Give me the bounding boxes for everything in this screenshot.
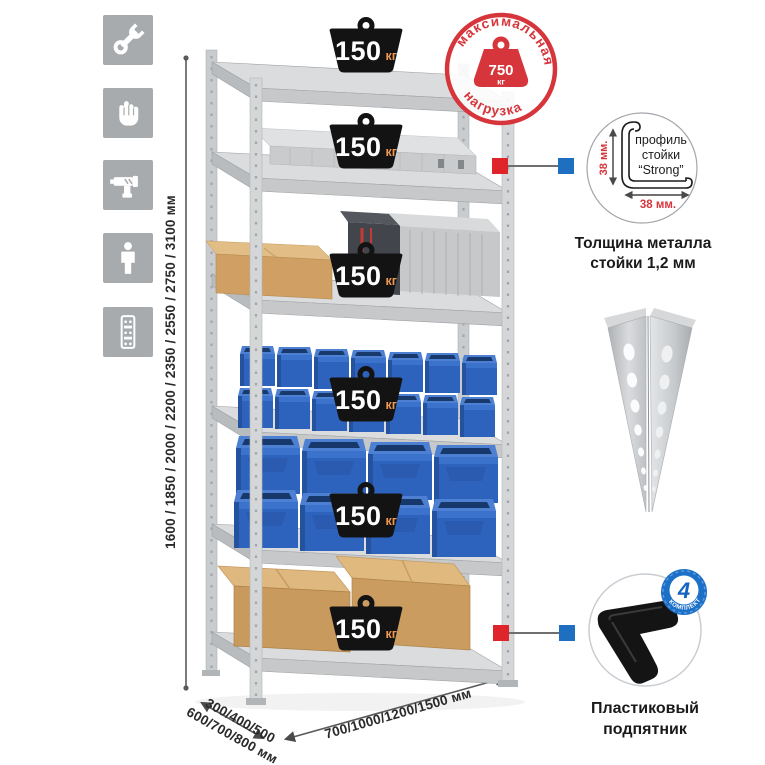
feature-tile-drill — [103, 160, 153, 210]
shelf-load-badge-6: 150кг — [322, 594, 410, 656]
load-unit: кг — [386, 49, 397, 63]
profile-caption-line-2: стойки 1,2 мм — [558, 254, 728, 274]
load-unit: кг — [386, 145, 397, 159]
blue-marker-top — [558, 158, 574, 174]
profile-detail-circle: 38 мм. 38 мм. профиль стойки “Strong” — [587, 113, 697, 223]
max-load-stamp: максимальная нагрузка 750 кг — [440, 8, 562, 130]
load-unit: кг — [386, 514, 397, 528]
corner-post-detail — [604, 308, 696, 512]
blue-marker-bottom — [559, 625, 575, 641]
stamp-load-unit: кг — [497, 77, 505, 87]
profile-label-3: “Strong” — [638, 163, 683, 177]
shelf-load-badge-5: 150кг — [322, 481, 410, 543]
person-icon — [109, 239, 147, 277]
feature-tile-assembly — [103, 15, 153, 65]
feature-tile-person — [103, 233, 153, 283]
connector-line-top — [507, 165, 559, 167]
shelf-load-badge-4: 150кг — [322, 365, 410, 427]
wrench-icon — [109, 21, 147, 59]
shelf-load-badge-1: 150кг — [322, 16, 410, 78]
gloves-icon — [109, 94, 147, 132]
profile-caption: Толщина металла стойки 1,2 мм — [558, 234, 728, 274]
profile-height-dim: 38 мм. — [598, 141, 610, 176]
height-dimension-label: 1600 / 1850 / 2000 / 2200 / 2350 / 2550 … — [163, 52, 179, 692]
feature-tile-rack-post — [103, 307, 153, 357]
badge-count: 4 — [677, 578, 690, 603]
load-value: 150 — [335, 385, 382, 415]
load-value: 150 — [335, 36, 382, 66]
product-infographic: 38 мм. 38 мм. профиль стойки “Strong” 4 … — [0, 0, 765, 765]
load-unit: кг — [386, 398, 397, 412]
profile-label-2: стойки — [642, 148, 680, 162]
load-value: 150 — [335, 614, 382, 644]
foot-caption-line-1: Пластиковый — [560, 698, 730, 719]
feature-tile-gloves — [103, 88, 153, 138]
load-value: 150 — [335, 261, 382, 291]
foot-caption: Пластиковый подпятник — [560, 698, 730, 740]
foot-caption-line-2: подпятник — [560, 719, 730, 740]
load-unit: кг — [386, 274, 397, 288]
profile-width-dim: 38 мм. — [640, 199, 676, 211]
profile-caption-line-1: Толщина металла — [558, 234, 728, 254]
connector-line-bottom — [508, 632, 560, 634]
red-marker-top — [492, 158, 508, 174]
rack-post-icon — [109, 313, 147, 351]
red-marker-bottom — [493, 625, 509, 641]
load-unit: кг — [386, 627, 397, 641]
drill-icon — [109, 166, 147, 204]
load-value: 150 — [335, 501, 382, 531]
shelf-load-badge-3: 150кг — [322, 241, 410, 303]
shelf-load-badge-2: 150кг — [322, 112, 410, 174]
load-value: 150 — [335, 132, 382, 162]
profile-label-1: профиль — [635, 133, 687, 147]
